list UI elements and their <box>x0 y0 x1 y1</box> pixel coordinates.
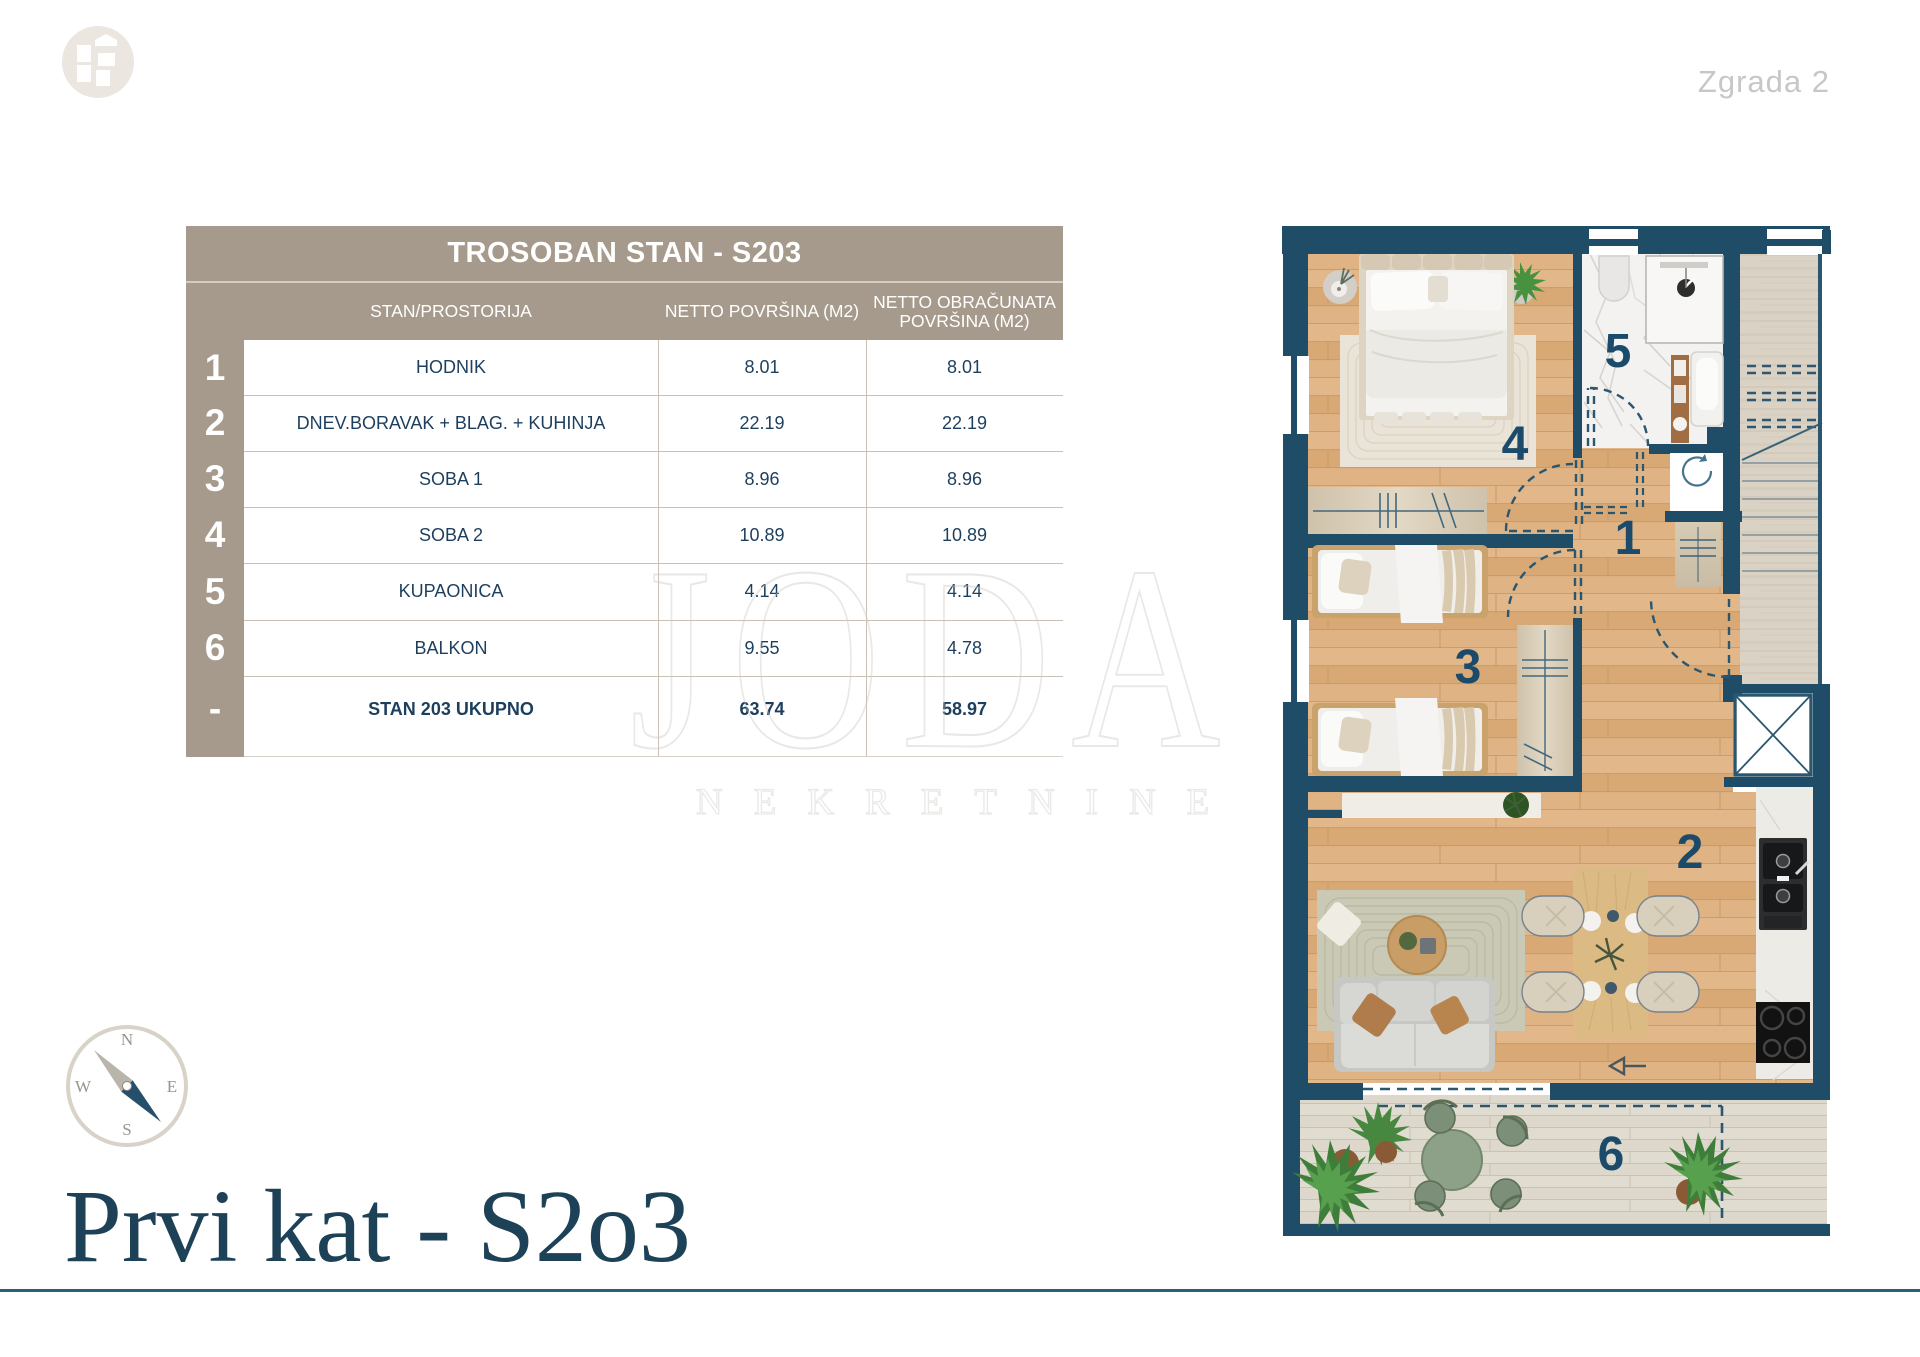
svg-text:5: 5 <box>1605 325 1632 378</box>
svg-text:E: E <box>167 1077 177 1096</box>
svg-text:2: 2 <box>1677 826 1704 879</box>
svg-text:W: W <box>75 1077 92 1096</box>
svg-text:1: 1 <box>1615 512 1642 565</box>
svg-text:3: 3 <box>1455 641 1482 694</box>
svg-text:S: S <box>122 1120 131 1139</box>
svg-text:4: 4 <box>1502 418 1529 471</box>
svg-text:N: N <box>121 1030 133 1049</box>
svg-text:6: 6 <box>1598 1128 1625 1181</box>
